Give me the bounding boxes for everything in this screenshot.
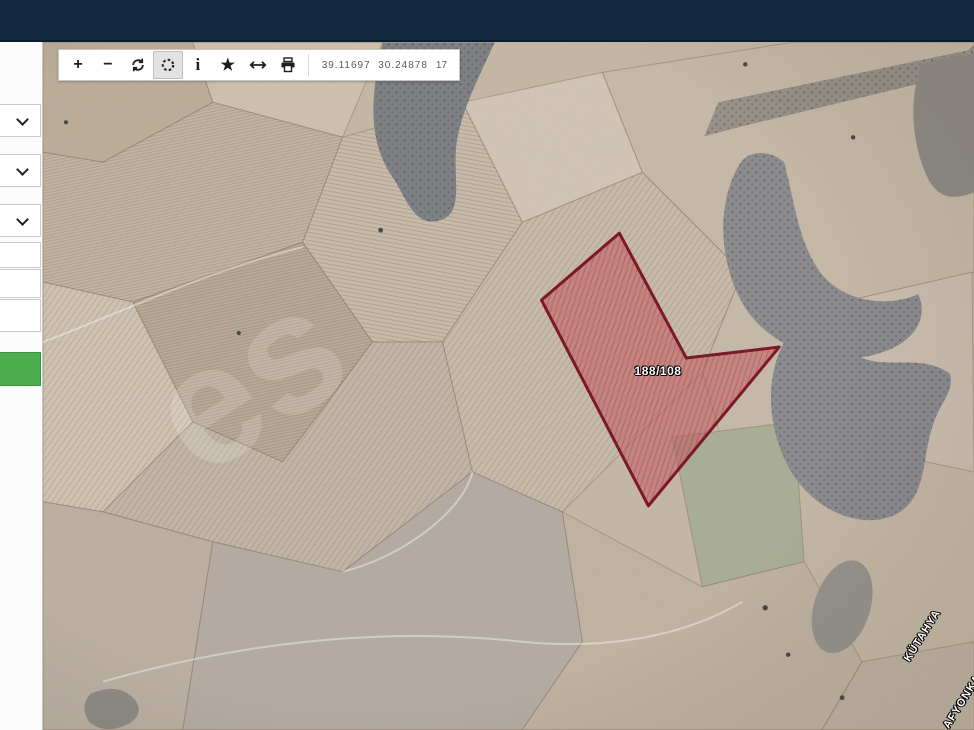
app-window: es 188/108 KÜTAHYA AFYONKARAHİSAR + − i … [0, 0, 974, 730]
favorite-button[interactable]: ★ [213, 51, 243, 79]
satellite-map[interactable] [43, 42, 974, 730]
app-header [0, 0, 974, 42]
zoom-in-button[interactable]: + [63, 51, 93, 79]
neighborhood-dropdown[interactable] [0, 204, 41, 237]
zoom-level-readout: 17 [436, 60, 455, 71]
toolbar-separator [308, 54, 309, 76]
refresh-button[interactable] [123, 51, 153, 79]
refresh-icon [130, 57, 146, 73]
cursor-coordinates: 39.11697 30.24878 [314, 60, 436, 71]
print-icon [280, 57, 296, 73]
map-viewport[interactable]: es 188/108 KÜTAHYA AFYONKARAHİSAR + − i … [43, 42, 974, 730]
chevron-down-icon [16, 213, 29, 226]
vignette-overlay [43, 42, 974, 729]
locate-icon [160, 57, 176, 73]
print-button[interactable] [273, 51, 303, 79]
map-toolbar: + − i ★ [58, 49, 460, 81]
parcel-input[interactable] [0, 269, 41, 298]
info-button[interactable]: i [183, 51, 213, 79]
chevron-down-icon [16, 113, 29, 126]
measure-button[interactable] [243, 51, 273, 79]
extra-input[interactable] [0, 299, 41, 332]
locate-button[interactable] [153, 51, 183, 79]
zoom-out-button[interactable]: − [93, 51, 123, 79]
measure-icon [249, 57, 267, 73]
district-dropdown[interactable] [0, 154, 41, 187]
query-submit-button[interactable] [0, 352, 41, 386]
chevron-down-icon [16, 163, 29, 176]
block-input[interactable] [0, 242, 41, 268]
province-dropdown[interactable] [0, 104, 41, 137]
query-sidebar [0, 42, 43, 730]
